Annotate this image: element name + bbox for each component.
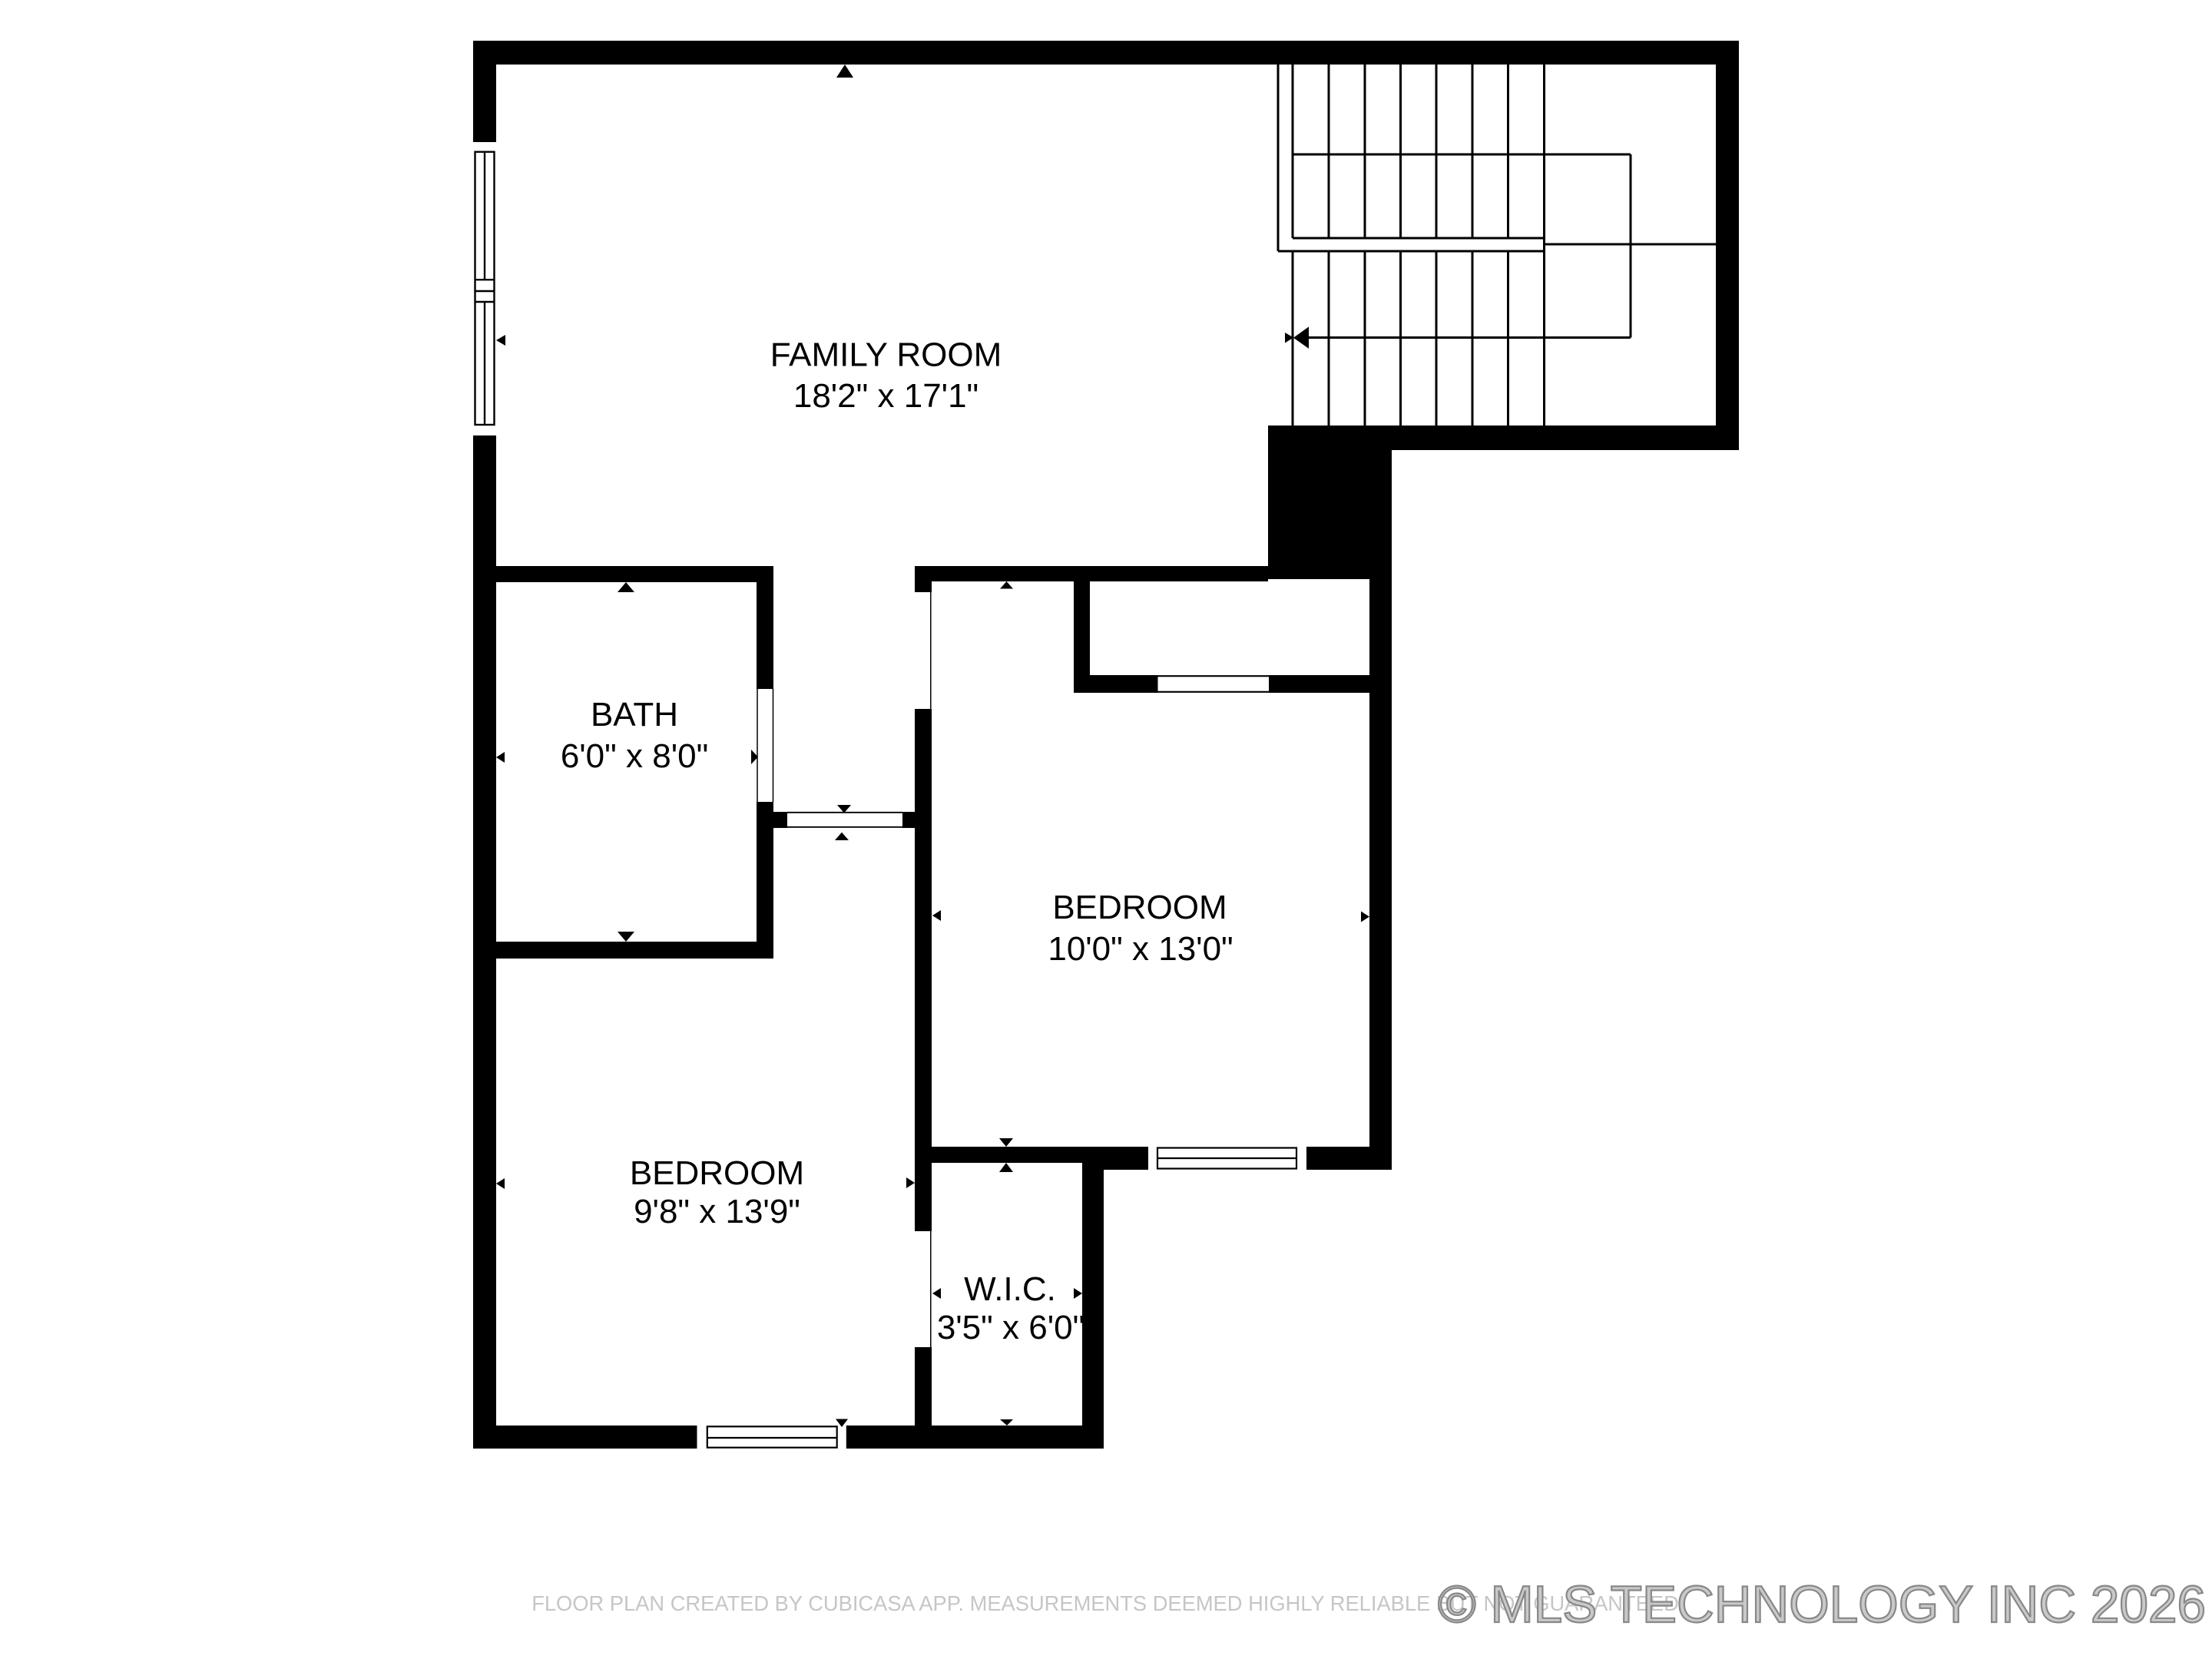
- svg-text:3'5" x 6'0": 3'5" x 6'0": [937, 1309, 1084, 1346]
- svg-text:© MLS TECHNOLOGY INC 2026: © MLS TECHNOLOGY INC 2026: [1438, 1576, 2206, 1634]
- svg-text:10'0" x 13'0": 10'0" x 13'0": [1048, 930, 1233, 968]
- svg-text:BATH: BATH: [591, 696, 678, 733]
- svg-text:W.I.C.: W.I.C.: [964, 1270, 1056, 1308]
- svg-text:BEDROOM: BEDROOM: [630, 1154, 804, 1192]
- svg-text:FAMILY ROOM: FAMILY ROOM: [770, 336, 1002, 374]
- svg-text:6'0" x 8'0": 6'0" x 8'0": [561, 737, 708, 775]
- svg-text:9'8" x 13'9": 9'8" x 13'9": [634, 1193, 800, 1230]
- svg-text:18'2" x 17'1": 18'2" x 17'1": [793, 377, 979, 415]
- svg-text:BEDROOM: BEDROOM: [1052, 889, 1227, 926]
